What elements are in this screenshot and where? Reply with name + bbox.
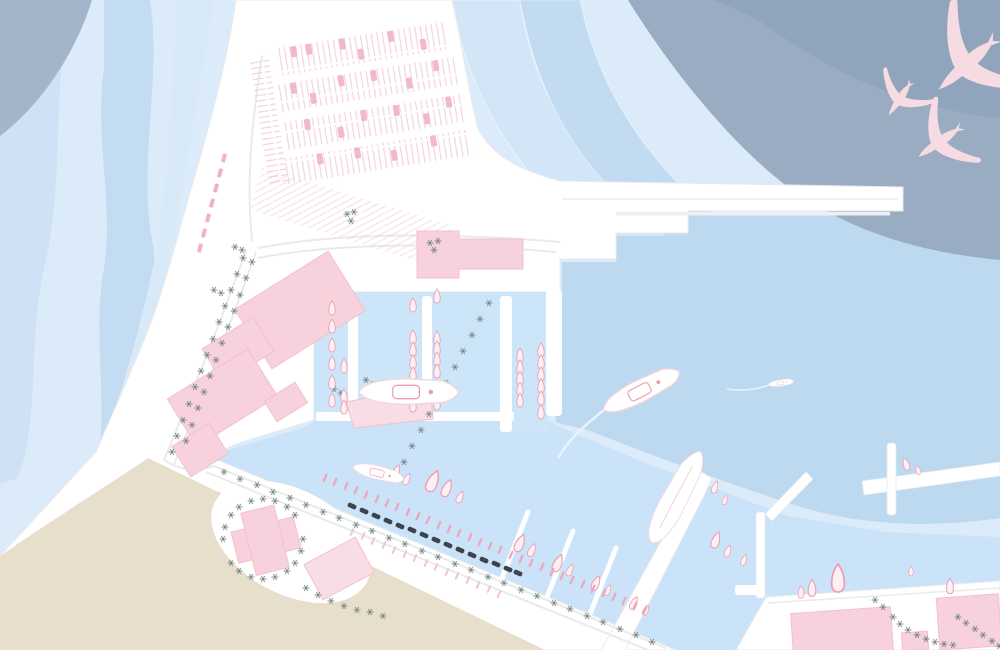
map-canvas	[0, 0, 1000, 650]
pier-stub-foot	[735, 585, 758, 595]
pier-shadow-line	[616, 212, 890, 216]
marina-pier-c	[500, 296, 512, 432]
pier-stub-north	[887, 443, 896, 515]
pier-stub-south	[756, 512, 765, 598]
yacht-marina-basin	[359, 379, 459, 405]
harbor-map-svg	[0, 0, 1000, 650]
marina-east-strip	[546, 290, 562, 416]
building-quay-1	[791, 607, 894, 650]
